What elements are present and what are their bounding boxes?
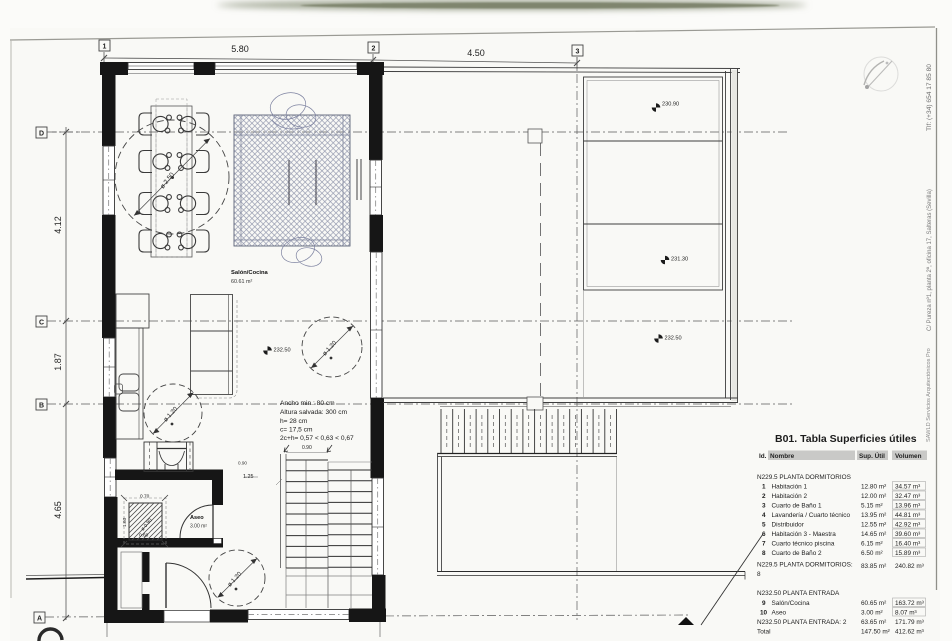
svg-text:63.65 m²: 63.65 m² <box>861 619 886 626</box>
svg-text:2: 2 <box>372 46 376 53</box>
svg-text:7: 7 <box>762 541 766 548</box>
svg-text:0.60: 0.60 <box>139 533 149 539</box>
svg-text:Nombre: Nombre <box>770 453 795 460</box>
svg-text:B: B <box>39 403 44 410</box>
svg-text:3.00 m²: 3.00 m² <box>861 610 883 617</box>
svg-text:12.55 m²: 12.55 m² <box>861 522 886 529</box>
svg-text:5: 5 <box>762 522 766 529</box>
svg-text:15.89 m³: 15.89 m³ <box>895 550 920 557</box>
svg-text:3.00 m²: 3.00 m² <box>190 524 207 530</box>
svg-text:A: A <box>37 616 42 623</box>
svg-text:13.95 m²: 13.95 m² <box>861 512 886 519</box>
svg-text:B01. Tabla Superficies útiles: B01. Tabla Superficies útiles <box>775 433 917 445</box>
svg-text:8.07 m³: 8.07 m³ <box>895 610 917 617</box>
svg-text:12.80 m²: 12.80 m² <box>861 484 886 491</box>
svg-text:32.47 m³: 32.47 m³ <box>895 493 920 500</box>
svg-text:0.70: 0.70 <box>140 494 150 500</box>
svg-text:13.96 m³: 13.96 m³ <box>895 503 920 510</box>
svg-text:231.30: 231.30 <box>671 257 688 263</box>
svg-text:Lavandería / Cuarto técnico: Lavandería / Cuarto técnico <box>772 512 851 519</box>
svg-text:6: 6 <box>762 531 766 538</box>
svg-text:SAWLD Servicios Arquitectónic: SAWLD Servicios Arquitectónicos Pro <box>926 348 932 442</box>
svg-text:4: 4 <box>762 512 766 519</box>
svg-text:Cuarto de Baño 2: Cuarto de Baño 2 <box>772 550 823 557</box>
svg-text:1.87: 1.87 <box>53 353 63 371</box>
svg-text:6.50 m²: 6.50 m² <box>861 550 883 557</box>
svg-text:Habitación 2: Habitación 2 <box>772 493 808 500</box>
svg-text:Habitación 1: Habitación 1 <box>772 484 808 491</box>
svg-text:Ancho min.: 80 cm: Ancho min.: 80 cm <box>280 400 335 407</box>
svg-text:Aseo: Aseo <box>772 610 787 617</box>
svg-text:Cuarto técnico piscina: Cuarto técnico piscina <box>772 541 835 548</box>
svg-text:Total: Total <box>757 629 771 636</box>
svg-text:N229.5 PLANTA DORMITORIOS: N229.5 PLANTA DORMITORIOS <box>757 474 851 481</box>
svg-text:16.40 m³: 16.40 m³ <box>895 541 920 548</box>
svg-text:5.15 m²: 5.15 m² <box>861 503 883 510</box>
svg-text:Salón/Cocina: Salón/Cocina <box>231 270 268 276</box>
svg-text:14.65 m²: 14.65 m² <box>861 531 886 538</box>
svg-text:42.92 m³: 42.92 m³ <box>895 522 920 529</box>
svg-text:2c+h= 0,57 < 0,63 < 0,67: 2c+h= 0,57 < 0,63 < 0,67 <box>280 435 354 442</box>
svg-text:Salón/Cocina: Salón/Cocina <box>772 600 810 607</box>
svg-text:3: 3 <box>576 49 580 56</box>
svg-text:Habitación 3 - Maestra: Habitación 3 - Maestra <box>772 531 837 538</box>
svg-text:12.00 m²: 12.00 m² <box>861 493 886 500</box>
svg-text:Altura salvada: 300 cm: Altura salvada: 300 cm <box>280 409 348 416</box>
svg-text:Sup. Útil: Sup. Útil <box>859 451 885 460</box>
svg-text:412.62 m³: 412.62 m³ <box>895 629 924 636</box>
svg-text:1: 1 <box>762 484 766 491</box>
svg-text:0.90: 0.90 <box>238 461 247 466</box>
svg-text:N229.5 PLANTA DORMITORIOS:: N229.5 PLANTA DORMITORIOS: <box>757 562 853 569</box>
svg-text:9: 9 <box>762 600 766 607</box>
svg-text:147.50 m²: 147.50 m² <box>861 629 890 636</box>
svg-text:Aseo: Aseo <box>190 515 204 521</box>
svg-text:N232.50 PLANTA ENTRADA: 2: N232.50 PLANTA ENTRADA: 2 <box>757 619 847 626</box>
svg-text:1: 1 <box>103 44 107 51</box>
svg-text:60.61 m²: 60.61 m² <box>231 279 252 285</box>
svg-text:Cuarto de Baño 1: Cuarto de Baño 1 <box>772 503 823 510</box>
svg-text:4.50: 4.50 <box>467 48 485 58</box>
svg-text:0.90: 0.90 <box>302 445 312 451</box>
svg-text:1.60: 1.60 <box>122 517 128 527</box>
svg-text:230.90: 230.90 <box>662 102 679 108</box>
svg-text:34.57 m³: 34.57 m³ <box>895 484 920 491</box>
svg-text:C: C <box>39 320 44 327</box>
svg-text:D: D <box>39 131 44 138</box>
svg-text:C/ Pureza nº1, planta 2ª, ofic: C/ Pureza nº1, planta 2ª, oficina 17, Sa… <box>926 189 933 331</box>
svg-text:6.15 m²: 6.15 m² <box>861 541 883 548</box>
svg-text:171.79 m³: 171.79 m³ <box>895 619 924 626</box>
svg-text:44.81 m³: 44.81 m³ <box>895 512 920 519</box>
svg-text:h= 28 cm: h= 28 cm <box>280 418 308 425</box>
svg-text:8: 8 <box>757 571 761 578</box>
svg-text:Id.: Id. <box>759 453 767 460</box>
svg-text:c= 17,5 cm: c= 17,5 cm <box>280 427 313 434</box>
svg-text:5.80: 5.80 <box>231 44 249 54</box>
svg-text:10: 10 <box>760 610 768 617</box>
svg-text:Volumen: Volumen <box>895 453 922 460</box>
svg-text:4.12: 4.12 <box>53 216 63 234</box>
svg-text:60.65 m²: 60.65 m² <box>861 600 886 607</box>
svg-text:83.85 m²: 83.85 m² <box>861 563 886 570</box>
svg-text:163.72 m³: 163.72 m³ <box>895 600 924 607</box>
svg-text:240.82 m³: 240.82 m³ <box>895 563 924 570</box>
svg-text:Tlf: (+34) 654 17 85 80: Tlf: (+34) 654 17 85 80 <box>926 64 933 131</box>
svg-text:39.60 m³: 39.60 m³ <box>895 531 920 538</box>
svg-text:N232.50 PLANTA ENTRADA: N232.50 PLANTA ENTRADA <box>757 590 840 597</box>
svg-text:8: 8 <box>762 550 766 557</box>
svg-text:2: 2 <box>762 493 766 500</box>
svg-text:4.65: 4.65 <box>53 501 63 519</box>
svg-text:232.50: 232.50 <box>665 336 682 342</box>
svg-text:232.50: 232.50 <box>274 348 291 354</box>
svg-text:3: 3 <box>762 503 766 510</box>
svg-text:Distribuidor: Distribuidor <box>772 522 805 529</box>
